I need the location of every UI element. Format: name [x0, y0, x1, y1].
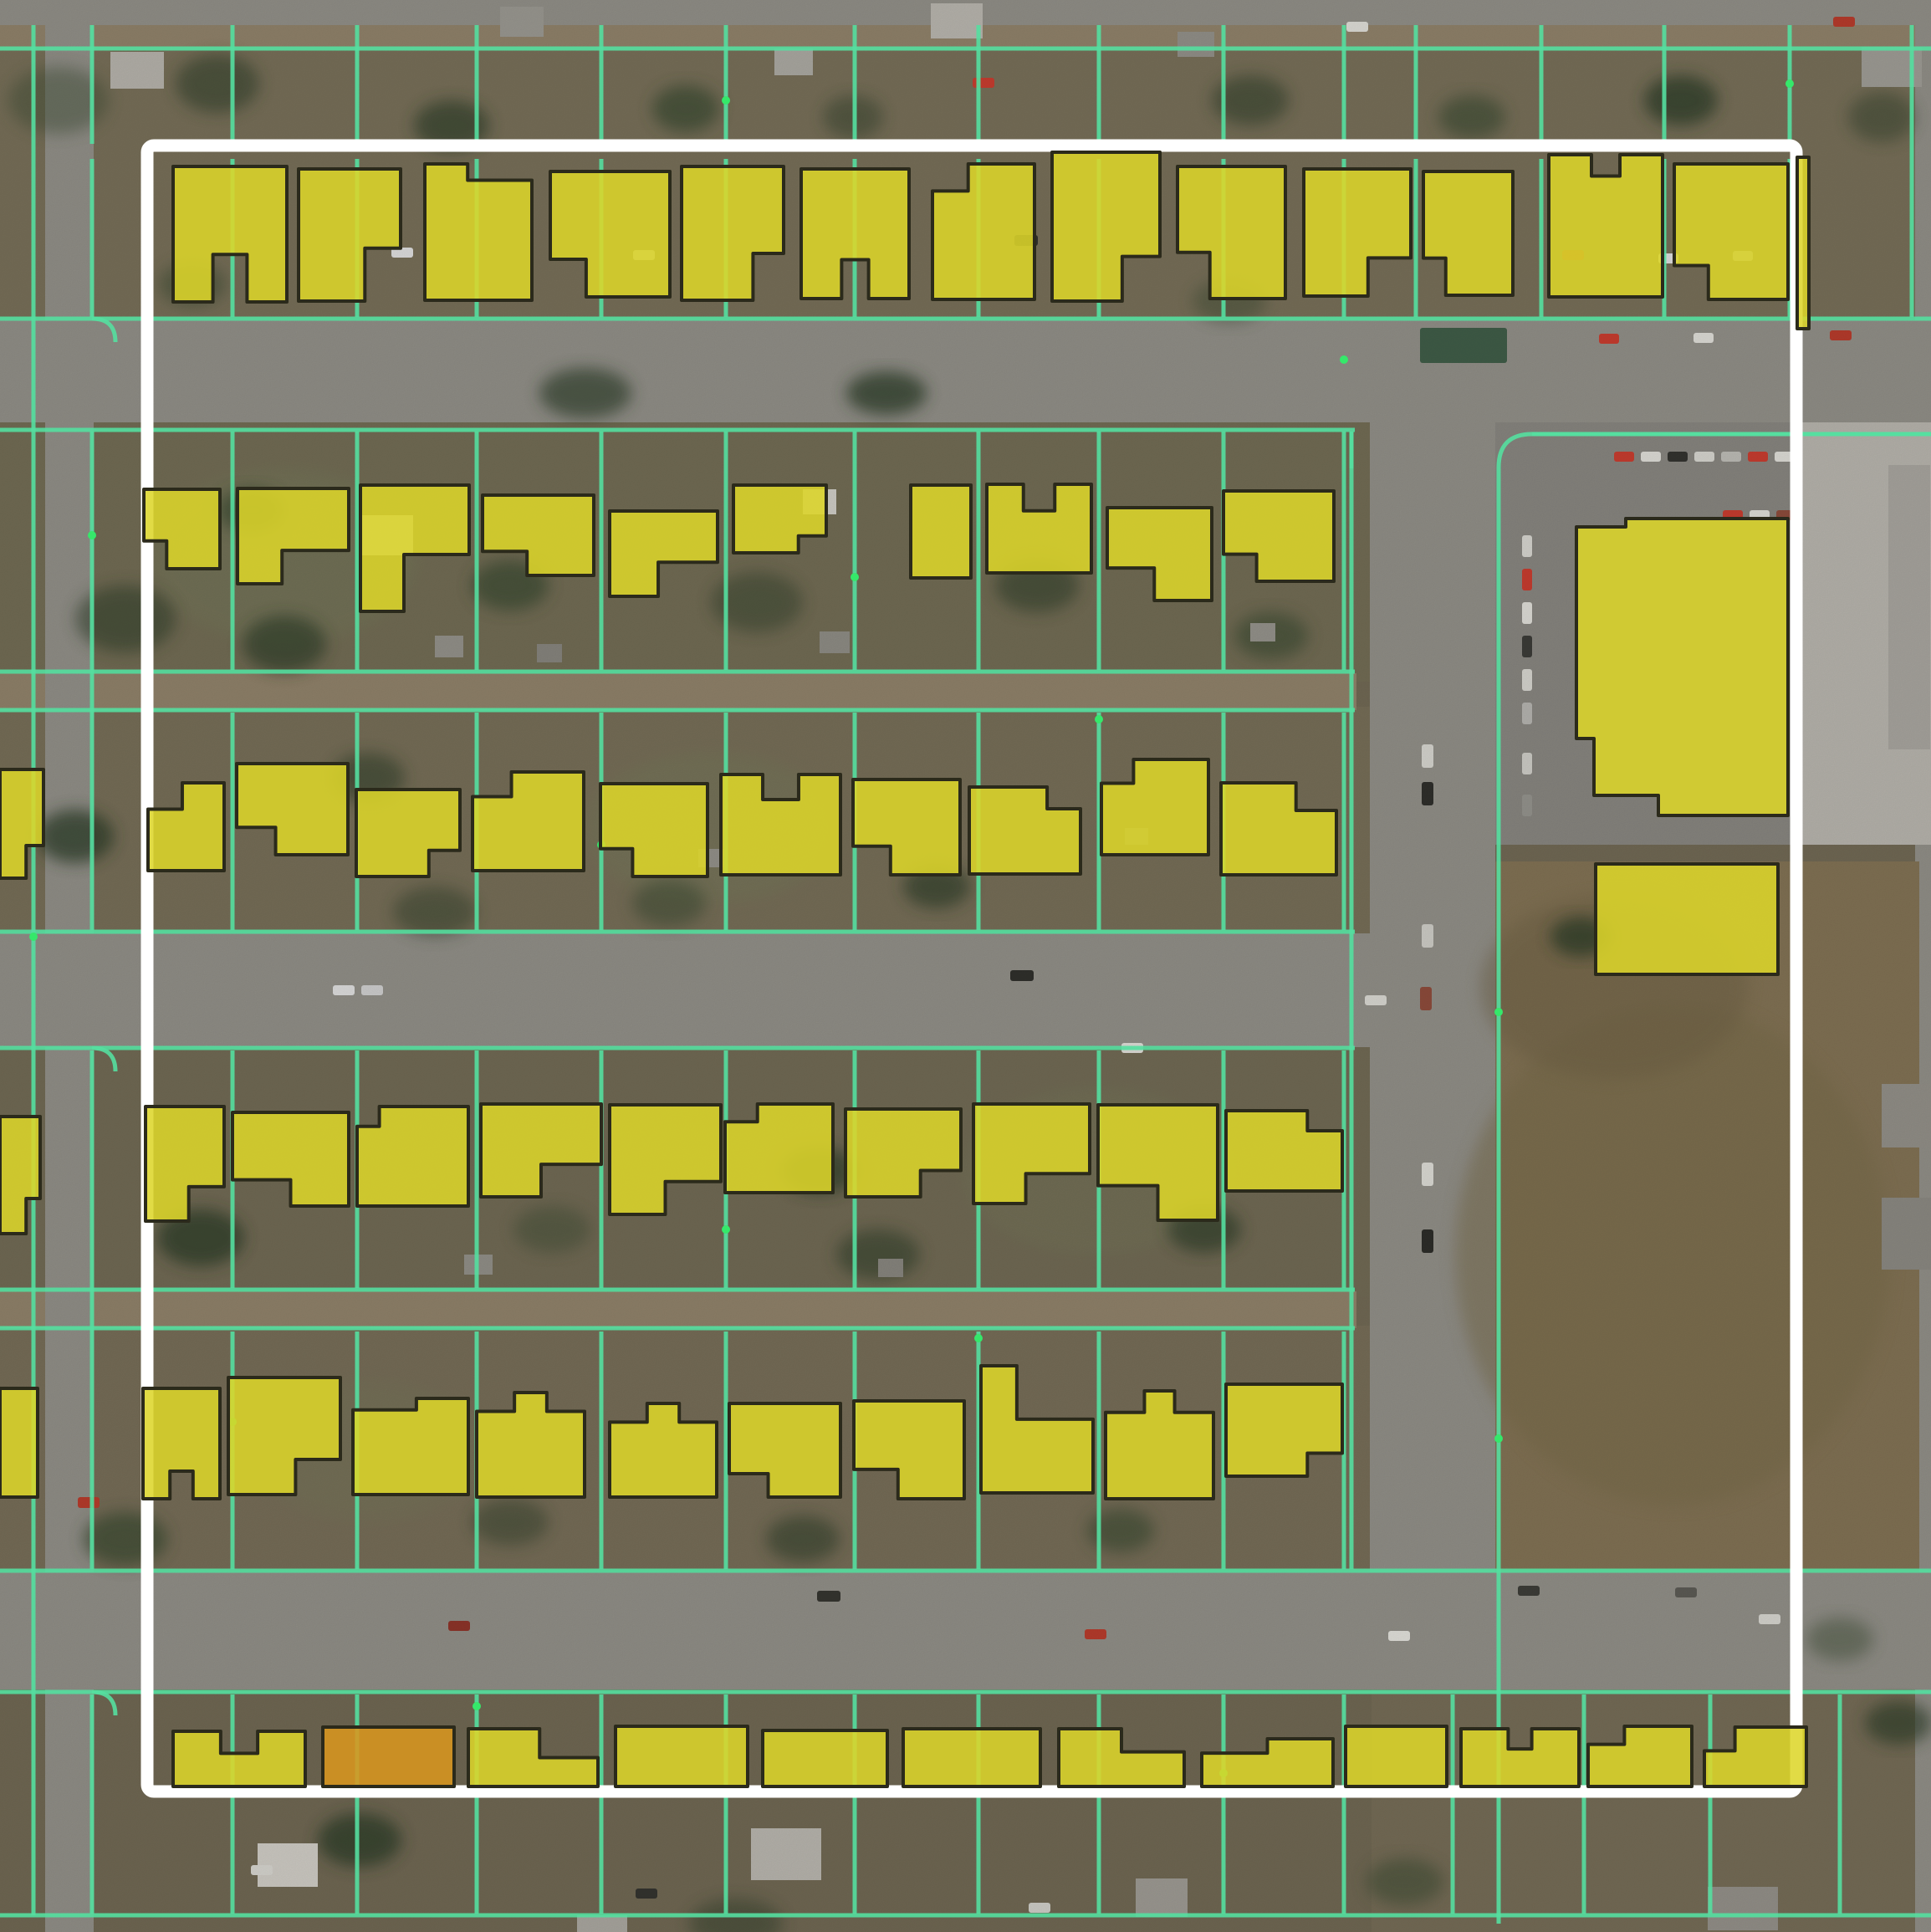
building-footprint-annotation[interactable] — [425, 164, 532, 300]
building-footprint-annotation[interactable] — [1596, 864, 1778, 974]
building-footprint-annotation[interactable] — [1549, 155, 1663, 297]
building-footprint-annotation[interactable] — [323, 1727, 454, 1786]
building-footprint-annotation[interactable] — [763, 1730, 887, 1786]
parcel-vertex-dot — [851, 573, 859, 581]
aerial-annotation-viewport[interactable] — [0, 0, 1931, 1932]
parcel-vertex-dot — [88, 531, 96, 539]
parcel-vertex-dot — [1494, 1434, 1503, 1443]
parcel-vertex-dot — [722, 96, 730, 105]
parcel-vertex-dot — [974, 1334, 983, 1342]
parcel-vertex-dot — [1785, 79, 1794, 88]
parcel-vertex-dot — [473, 1702, 481, 1710]
parcel-vertex-dot — [29, 933, 38, 941]
parcel-vertex-dot — [1494, 1008, 1503, 1016]
building-footprint-annotation[interactable] — [911, 485, 971, 578]
building-footprint-annotation[interactable] — [0, 1388, 38, 1497]
parcel-vertex-dot — [722, 1225, 730, 1234]
parcel-vertex-dot — [1095, 715, 1103, 723]
parcel-vertex-dot — [1340, 355, 1348, 364]
building-footprint-annotation[interactable] — [1346, 1726, 1447, 1786]
building-footprint-annotation[interactable] — [1576, 519, 1788, 815]
aerial-imagery-canvas[interactable] — [0, 0, 1931, 1932]
building-footprint-annotation[interactable] — [353, 1398, 468, 1495]
building-footprint-annotation[interactable] — [1797, 157, 1809, 329]
building-footprint-annotation[interactable] — [616, 1726, 748, 1786]
building-footprint-annotation[interactable] — [903, 1729, 1040, 1786]
